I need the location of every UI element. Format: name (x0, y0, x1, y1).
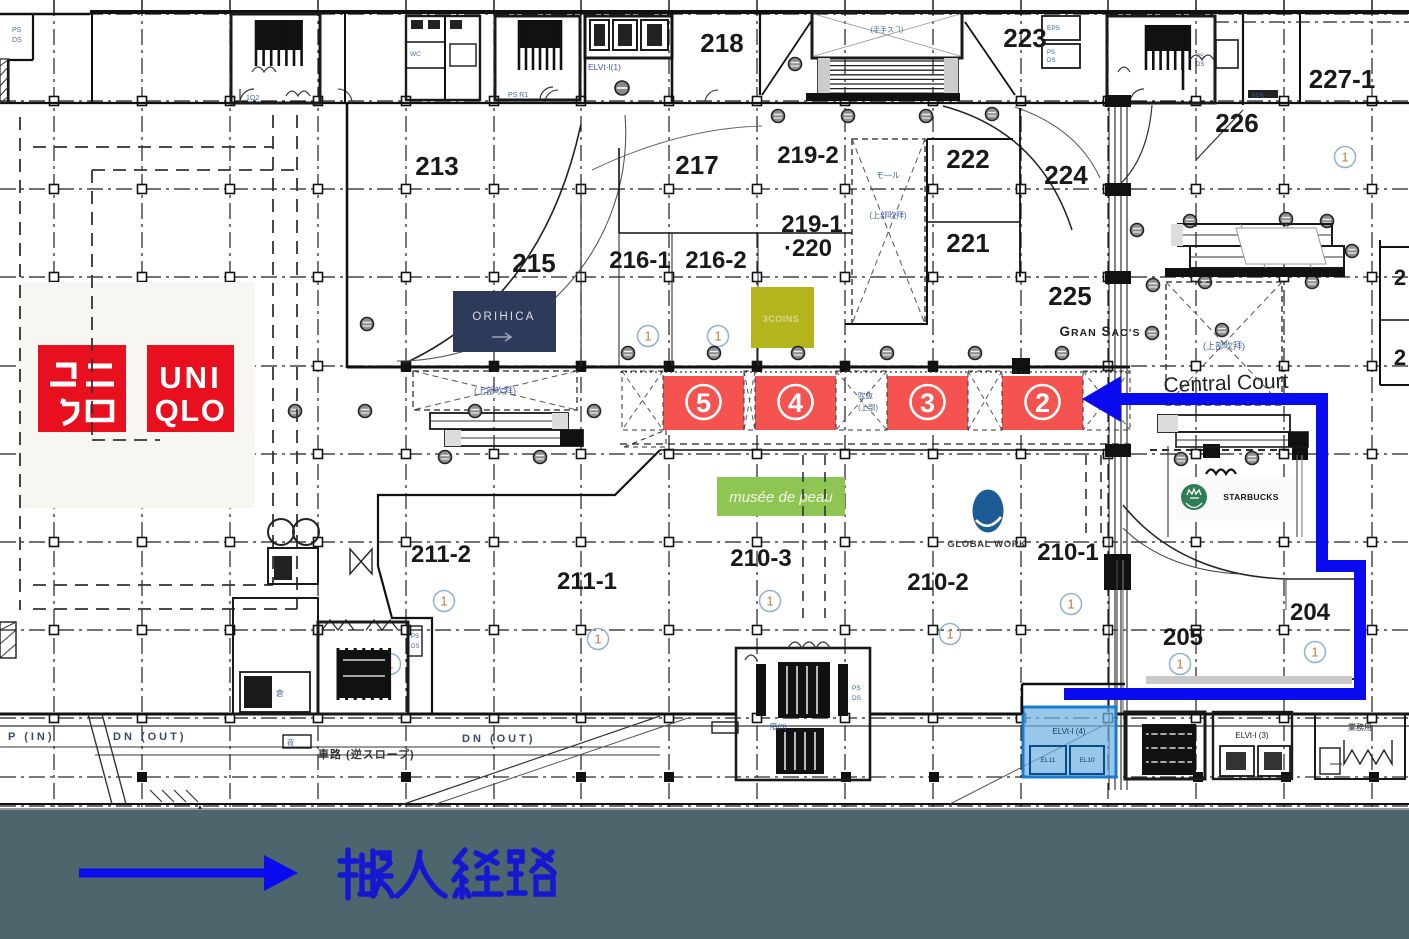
svg-text:215: 215 (512, 248, 555, 278)
svg-text:219-1: 219-1 (781, 211, 842, 238)
svg-text:GLOBAL WORK: GLOBAL WORK (947, 539, 1026, 550)
svg-text:DN (OUT): DN (OUT) (462, 733, 536, 745)
svg-text:227-1: 227-1 (1309, 64, 1376, 94)
svg-text:P (IN): P (IN) (8, 731, 55, 743)
svg-text:·220: ·220 (784, 235, 832, 262)
svg-text:EL11: EL11 (1041, 757, 1056, 764)
svg-text:EPS: EPS (1047, 25, 1061, 32)
svg-text:1: 1 (1067, 597, 1074, 612)
svg-text:DS: DS (1047, 58, 1055, 64)
svg-text:1: 1 (1311, 645, 1318, 660)
svg-text:223: 223 (1003, 23, 1046, 53)
svg-text:荷: 荷 (287, 738, 294, 747)
svg-text:225: 225 (1048, 281, 1091, 311)
svg-text:217: 217 (675, 150, 718, 180)
svg-text:モ―ル: モ―ル (876, 171, 900, 180)
svg-text:2: 2 (1394, 265, 1406, 290)
svg-text:STARBUCKS: STARBUCKS (1223, 492, 1278, 502)
svg-text:221: 221 (946, 228, 989, 258)
svg-text:218: 218 (700, 28, 743, 58)
svg-text:EL10: EL10 (1079, 757, 1095, 764)
svg-text:PS: PS (1196, 54, 1204, 60)
svg-text:210-2: 210-2 (907, 569, 968, 596)
svg-text:ELVt-l (3): ELVt-l (3) (1235, 731, 1269, 740)
svg-text:222: 222 (946, 144, 989, 174)
svg-text:PS: PS (12, 27, 22, 34)
svg-text:EPS: EPS (1252, 94, 1264, 100)
svg-text:GRAN SAC’S: GRAN SAC’S (1059, 324, 1140, 339)
svg-text:ORIHICA: ORIHICA (472, 311, 535, 323)
svg-text:4: 4 (788, 388, 803, 418)
svg-text:ELVt-l(1): ELVt-l(1) (588, 62, 621, 72)
svg-text:ELVt-l (4): ELVt-l (4) (1052, 727, 1086, 736)
svg-text:2: 2 (1035, 388, 1050, 418)
svg-text:211-1: 211-1 (557, 568, 617, 595)
svg-text:205: 205 (1163, 624, 1203, 651)
svg-text:musée de peau: musée de peau (729, 489, 833, 506)
svg-text:1O2: 1O2 (246, 95, 259, 102)
svg-text:(上部吹拜): (上部吹拜) (474, 385, 516, 396)
svg-text:3: 3 (920, 388, 935, 418)
svg-text:216-2: 216-2 (685, 247, 746, 274)
svg-text:5: 5 (696, 388, 711, 418)
svg-text:DN (OUT): DN (OUT) (113, 731, 187, 743)
svg-text:吹抜: 吹抜 (858, 390, 873, 400)
svg-text:車路 (逆スロープ): 車路 (逆スロープ) (318, 747, 415, 761)
svg-text:224: 224 (1044, 160, 1088, 190)
svg-text:倉: 倉 (276, 688, 284, 698)
svg-text:WC: WC (410, 51, 421, 58)
svg-text:1: 1 (714, 329, 721, 344)
svg-text:DS: DS (12, 37, 22, 44)
svg-text:1: 1 (1176, 657, 1183, 672)
svg-text:216-1: 216-1 (609, 247, 670, 274)
svg-text:1: 1 (644, 329, 651, 344)
svg-text:(手手スヿ): (手手スヿ) (871, 25, 904, 34)
svg-text:210-3: 210-3 (730, 545, 791, 572)
svg-text:2: 2 (1394, 345, 1406, 370)
svg-text:210-1: 210-1 (1037, 539, 1098, 566)
svg-text:業務用: 業務用 (1348, 722, 1372, 732)
svg-text:(上部): (上部) (858, 402, 878, 412)
svg-text:▲: ▲ (197, 804, 204, 811)
svg-text:1: 1 (594, 632, 601, 647)
svg-text:3COINS: 3COINS (763, 314, 800, 324)
svg-text:DS: DS (852, 695, 862, 702)
svg-text:PS: PS (1047, 50, 1055, 56)
svg-text:1: 1 (766, 594, 773, 609)
svg-text:PS R1: PS R1 (508, 92, 528, 99)
svg-text:UNI: UNI (159, 360, 221, 395)
svg-text:204: 204 (1290, 599, 1331, 626)
svg-text:QLO: QLO (155, 393, 227, 428)
svg-text:(上部吹拜): (上部吹拜) (869, 210, 907, 220)
svg-text:PS: PS (852, 685, 861, 692)
svg-text:213: 213 (415, 151, 458, 181)
svg-text:1: 1 (440, 594, 447, 609)
svg-text:DS: DS (1196, 62, 1204, 68)
svg-text:226: 226 (1215, 108, 1258, 138)
svg-text:PS: PS (411, 634, 419, 640)
svg-text:211-2: 211-2 (411, 541, 471, 568)
svg-text:219-2: 219-2 (777, 142, 838, 169)
svg-text:1: 1 (946, 627, 953, 642)
svg-text:DS: DS (411, 644, 419, 650)
svg-text:(上部吹拜): (上部吹拜) (1203, 340, 1245, 351)
svg-text:1: 1 (1341, 150, 1348, 165)
svg-text:階(3): 階(3) (770, 721, 787, 731)
